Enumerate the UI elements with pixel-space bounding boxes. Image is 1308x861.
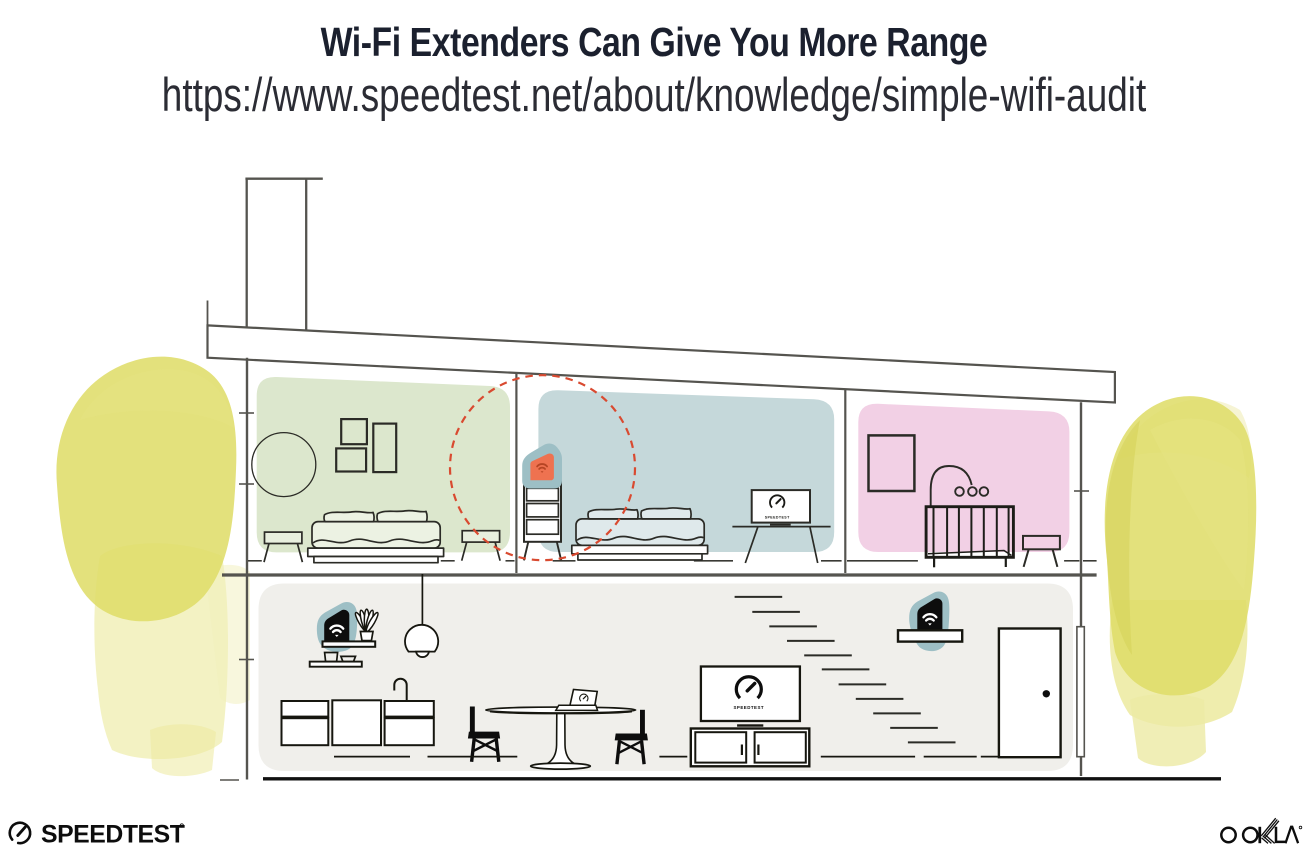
svg-text:SPEEDTEST: SPEEDTEST	[733, 705, 764, 710]
svg-text:SPEEDTEST: SPEEDTEST	[765, 516, 790, 520]
svg-text:SPEEDTEST: SPEEDTEST	[41, 822, 185, 849]
